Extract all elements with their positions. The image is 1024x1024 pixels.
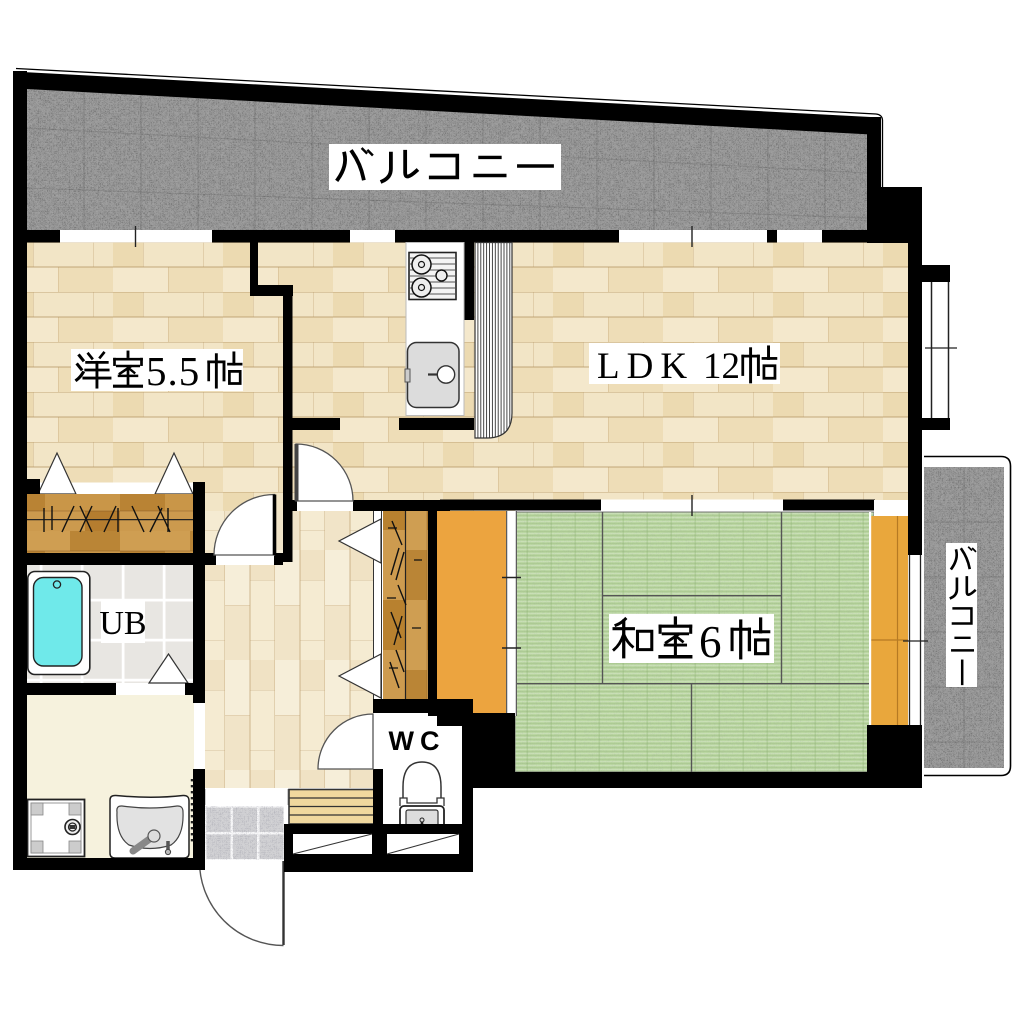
- svg-text:5.5: 5.5: [146, 348, 200, 394]
- svg-text:UB: UB: [99, 605, 146, 642]
- svg-text:WC: WC: [389, 726, 446, 756]
- svg-text:6: 6: [699, 617, 722, 667]
- svg-text:LDK: LDK: [597, 346, 694, 387]
- svg-text:12: 12: [703, 346, 740, 387]
